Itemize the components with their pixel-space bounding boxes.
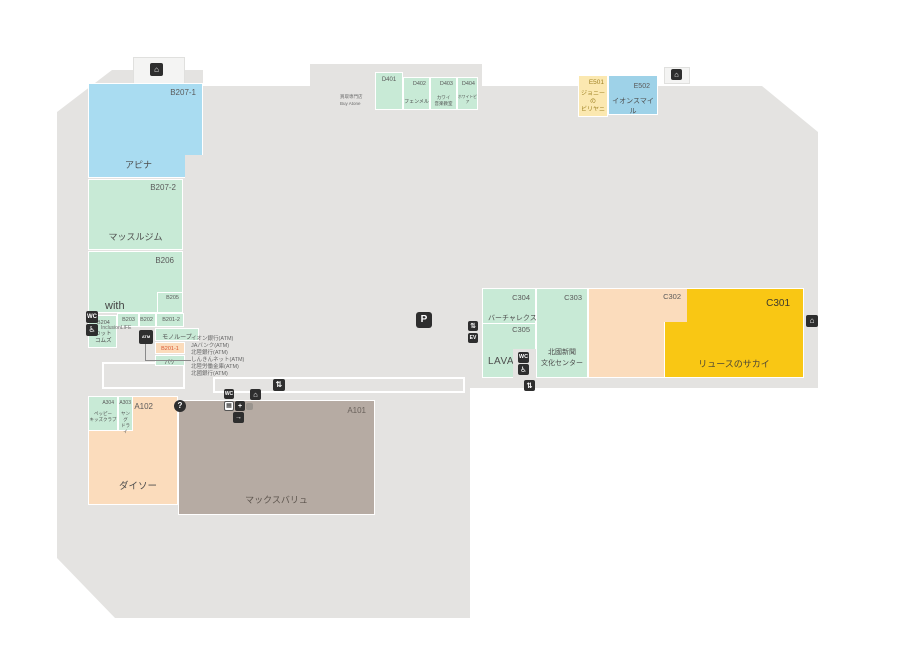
info-icon: ? xyxy=(174,400,186,412)
unit-name: ダイソー xyxy=(119,478,157,492)
name-line: 北國新聞 xyxy=(537,347,587,358)
unit-e502[interactable]: E502 イオンスマイル xyxy=(608,75,658,115)
corridor-b-wing xyxy=(102,362,185,389)
atm-bank: イオン銀行(ATM) xyxy=(191,336,244,343)
name-line: キッズクラブ xyxy=(89,417,117,423)
atm-bank: 北陸労働金庫(ATM) xyxy=(191,364,244,371)
escalator-icon: ⇅ xyxy=(468,321,478,331)
unit-divider xyxy=(483,323,535,324)
unit-code: D402 xyxy=(413,81,426,87)
unit-code: B201-2 xyxy=(162,317,180,323)
parking-icon: P xyxy=(416,312,432,328)
unit-code-c305: C305 xyxy=(512,325,530,334)
unit-name: イオンスマイル xyxy=(609,96,657,116)
unit-code: E501 xyxy=(589,79,604,86)
unit-code: E502 xyxy=(634,83,650,90)
unit-name: マッスルジム xyxy=(89,230,182,243)
restroom-icon: WC xyxy=(518,352,529,363)
unit-code: B201-1 xyxy=(156,346,184,352)
unit-code: C302 xyxy=(663,292,681,301)
wheelchair-icon: ♿ xyxy=(518,364,529,375)
unit-name: マックスバリュ xyxy=(179,493,374,506)
unit-code: A101 xyxy=(347,406,366,415)
entrance-icon: ⌂ xyxy=(671,69,682,80)
unit-e501[interactable]: E501 ジョニーの ビリヤニ xyxy=(578,75,608,117)
unit-code: A304 xyxy=(102,400,114,406)
restroom-icon: WC xyxy=(224,389,234,399)
d401-note-line1: 買取専門店 xyxy=(340,94,363,100)
unit-code: B207-2 xyxy=(150,183,176,192)
unit-c303[interactable]: C303 北國新聞 文化センター xyxy=(536,288,588,378)
unit-b201-2[interactable]: B201-2 xyxy=(156,313,184,327)
wheelchair-icon: ♿ xyxy=(86,324,98,336)
unit-a101[interactable]: A101 マックスバリュ xyxy=(178,400,375,515)
atm-icon: ATM xyxy=(139,330,153,344)
name-line: ビリヤニ xyxy=(579,106,607,114)
unit-name: ホワイトピア xyxy=(458,95,477,105)
unit-code: C301 xyxy=(766,298,790,309)
name-line: 音楽教室 xyxy=(431,101,456,107)
unit-b202[interactable]: B202 xyxy=(139,313,156,327)
unit-code: B207-1 xyxy=(170,88,196,97)
unit-code: A303 xyxy=(119,400,131,406)
atm-bank: 北陸銀行(ATM) xyxy=(191,350,244,357)
unit-code: C303 xyxy=(564,293,582,302)
name-line: ヤング xyxy=(119,411,132,423)
escalator-icon: ⇅ xyxy=(524,380,535,391)
entrance-icon: ⌂ xyxy=(806,315,818,327)
vending-icon xyxy=(246,403,253,410)
escalator-icon: ⇅ xyxy=(273,379,285,391)
unit-name: 北國新聞 文化センター xyxy=(537,347,587,369)
unit-a303[interactable]: A303 ヤング ドライ xyxy=(118,396,133,431)
atm-bank: 北國銀行(ATM) xyxy=(191,371,244,378)
unit-d403[interactable]: D403 カワイ 音楽教室 xyxy=(430,77,457,110)
name-line: 文化センター xyxy=(537,358,587,369)
entrance-icon: ⌂ xyxy=(250,389,261,400)
name-line: コムズ xyxy=(95,338,112,345)
unit-code: B206 xyxy=(155,256,174,265)
tenant-label-inclusionlife: InclusionLIFE xyxy=(101,325,131,331)
unit-name: バーチャレクス xyxy=(488,313,537,323)
atm-bank: JAバンク(ATM) xyxy=(191,343,244,350)
unit-name: ヤング ドライ xyxy=(119,411,132,435)
unit-name: ペッピー キッズクラブ xyxy=(89,411,117,423)
unit-name: フェンメル xyxy=(404,98,429,105)
unit-a304[interactable]: A304 ペッピー キッズクラブ xyxy=(88,396,118,431)
unit-code: D401 xyxy=(376,77,402,83)
unit-d402[interactable]: D402 フェンメル xyxy=(403,77,430,110)
aed-icon: + xyxy=(235,401,245,411)
name-line: ジョニーの xyxy=(579,90,607,106)
unit-code: B203 xyxy=(122,317,135,323)
unit-name-lava: LAVA xyxy=(488,356,514,367)
atm-bank-list: イオン銀行(ATM) JAバンク(ATM) 北陸銀行(ATM) しんきんネット(… xyxy=(191,336,244,378)
unit-code: D404 xyxy=(462,81,475,87)
atm-bank: しんきんネット(ATM) xyxy=(191,357,244,364)
atm-connector-line xyxy=(145,344,146,361)
unit-code: B202 xyxy=(140,317,153,323)
unit-code: C304 xyxy=(512,293,530,302)
unit-name: リュースのサカイ xyxy=(665,357,803,370)
unit-b207-2[interactable]: B207-2 マッスルジム xyxy=(88,179,183,250)
mall-floor-map: B207-1 アピナ B207-2 マッスルジム B206 with B205 … xyxy=(0,0,900,671)
d401-note-line2: Buy Atone xyxy=(340,101,361,106)
unit-name: カワイ 音楽教室 xyxy=(431,95,456,106)
unit-b205[interactable]: B205 xyxy=(157,292,183,313)
locker-icon: ▦ xyxy=(224,401,234,411)
unit-code: A102 xyxy=(134,402,153,411)
elevator-icon: EV xyxy=(468,333,478,343)
unit-code: D403 xyxy=(440,81,453,87)
entrance-icon: ⌂ xyxy=(150,63,163,76)
restroom-icon: WC xyxy=(86,311,98,323)
unit-d404[interactable]: D404 ホワイトピア xyxy=(457,77,478,110)
atm-connector-line xyxy=(145,360,191,361)
unit-name: アピナ xyxy=(125,158,152,171)
exit-arrow-icon: → xyxy=(233,412,244,423)
unit-code: B205 xyxy=(166,295,179,301)
unit-name: with xyxy=(105,300,125,312)
unit-b201-1[interactable]: B201-1 xyxy=(155,342,185,354)
unit-name: ジョニーの ビリヤニ xyxy=(579,90,607,114)
name-line: ドライ xyxy=(119,423,132,435)
unit-d401[interactable]: D401 xyxy=(375,72,403,110)
